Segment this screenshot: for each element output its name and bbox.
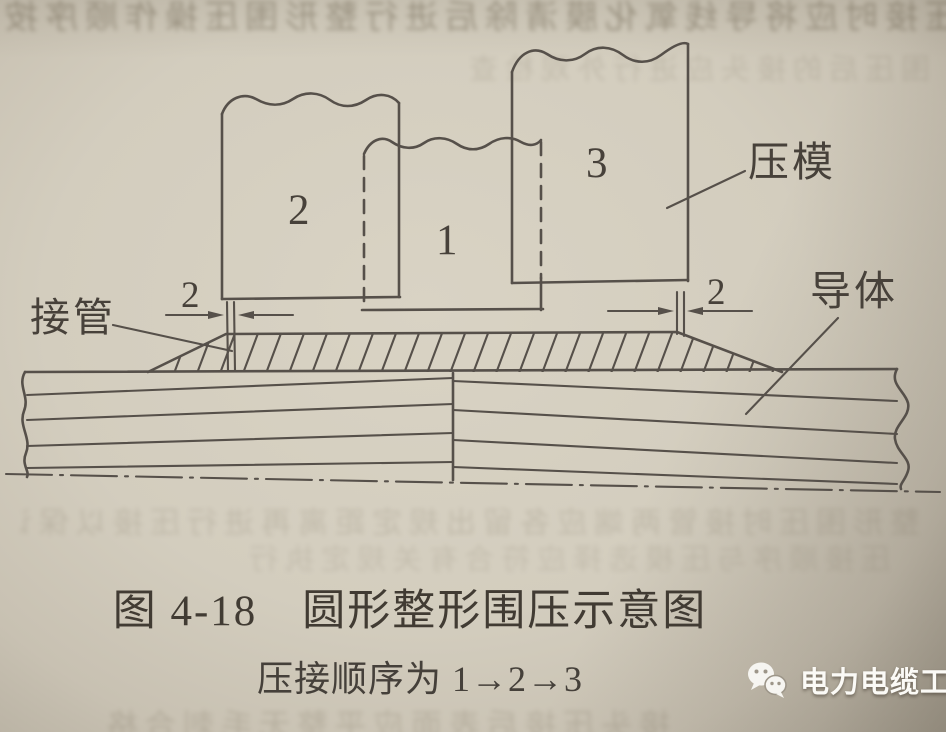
conductor-strands-right xyxy=(453,381,897,484)
book-page-photo: 压接时应将导线氧化膜清除后进行整形围压操作顺序按图示要求执行压接 围压后的接头应… xyxy=(0,0,946,732)
die-2-number: 2 xyxy=(288,187,310,234)
die-label: 压模 xyxy=(748,139,836,185)
conductor-label: 导体 xyxy=(810,268,898,314)
die-2-outline xyxy=(222,93,400,299)
conductor-break-right xyxy=(895,369,909,489)
conductor-break-left xyxy=(22,372,27,477)
die-leader-line xyxy=(667,171,745,208)
tube-label: 接管 xyxy=(30,295,116,340)
dimension-left-gap: 2 xyxy=(166,275,293,371)
wechat-icon xyxy=(746,659,792,701)
tube-leader-line xyxy=(113,325,232,351)
dimension-left-value: 2 xyxy=(181,275,200,316)
figure-subcaption: 压接顺序为 1→2→3 xyxy=(120,650,720,702)
dimension-right-value: 2 xyxy=(707,272,726,313)
conductor-leader-line xyxy=(746,318,838,414)
conductor-outline xyxy=(22,369,908,489)
watermark: 电力电缆工 xyxy=(746,659,946,701)
die-3-number: 3 xyxy=(586,140,608,187)
figure-caption: 图 4-18 圆形整形围压示意图 xyxy=(60,576,760,638)
conductor-strands-left xyxy=(27,378,453,468)
conductor-centerline xyxy=(6,474,940,492)
die-1-number: 1 xyxy=(436,217,458,264)
watermark-text: 电力电缆工 xyxy=(800,659,946,701)
